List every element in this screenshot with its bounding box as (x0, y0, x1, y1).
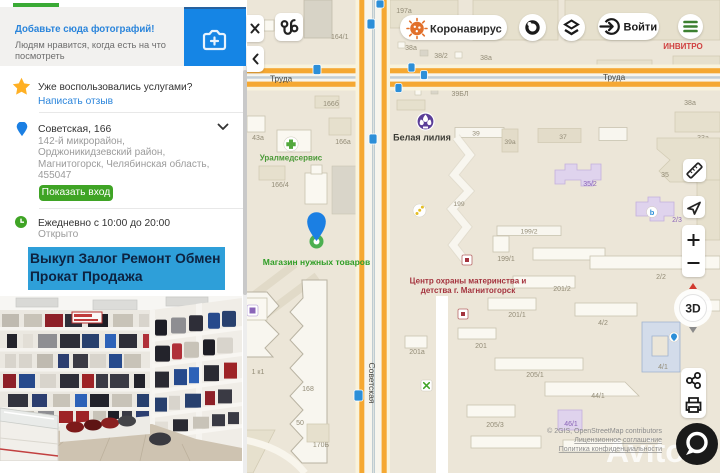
svg-text:2/2: 2/2 (656, 274, 666, 281)
svg-text:35: 35 (661, 172, 669, 179)
svg-text:39БЛ: 39БЛ (452, 91, 469, 98)
svg-text:35/2: 35/2 (583, 181, 597, 188)
svg-text:201а: 201а (409, 349, 425, 356)
svg-text:3D: 3D (685, 302, 701, 316)
svg-text:Магазин нужных товаров: Магазин нужных товаров (263, 257, 370, 267)
svg-text:ИНВИТРО: ИНВИТРО (663, 42, 702, 51)
svg-text:4/2: 4/2 (598, 320, 608, 327)
svg-text:197а: 197а (396, 8, 412, 15)
svg-text:детства г. Магнитогорск: детства г. Магнитогорск (421, 286, 517, 295)
svg-text:199/1: 199/1 (497, 256, 515, 263)
svg-text:4/1: 4/1 (658, 364, 668, 371)
svg-text:Белая лилия: Белая лилия (393, 133, 451, 143)
svg-text:39: 39 (472, 131, 480, 138)
svg-text:46/1: 46/1 (564, 421, 578, 428)
svg-text:Советская: Советская (367, 362, 377, 403)
svg-text:205/1: 205/1 (526, 372, 544, 379)
svg-text:166а: 166а (335, 139, 351, 146)
svg-text:205/3: 205/3 (486, 422, 504, 429)
svg-text:38а: 38а (405, 45, 417, 52)
svg-text:38а: 38а (480, 55, 492, 62)
svg-text:Войти: Войти (624, 22, 658, 34)
svg-text:199/2: 199/2 (520, 229, 537, 236)
svg-text:39а: 39а (504, 139, 516, 146)
svg-text:Коронавирус: Коронавирус (430, 24, 502, 36)
svg-text:168: 168 (302, 386, 314, 393)
svg-text:201: 201 (475, 343, 487, 350)
svg-text:Политика конфиденциальности: Политика конфиденциальности (559, 446, 662, 453)
svg-text:44/1: 44/1 (591, 393, 605, 400)
svg-text:166/4: 166/4 (271, 182, 289, 189)
svg-text:166б: 166б (323, 100, 339, 108)
svg-text:50: 50 (296, 420, 304, 427)
svg-text:1 к1: 1 к1 (252, 369, 265, 376)
svg-text:© 2GIS, OpenStreetMap contribu: © 2GIS, OpenStreetMap contributors (547, 427, 662, 435)
svg-text:Центр охраны материнства и: Центр охраны материнства и (410, 277, 527, 286)
svg-text:164/1: 164/1 (331, 34, 349, 41)
svg-text:Лицензионное соглашение: Лицензионное соглашение (574, 437, 662, 444)
svg-text:199: 199 (453, 201, 465, 208)
svg-text:2/3: 2/3 (672, 217, 682, 224)
svg-text:37: 37 (559, 134, 567, 141)
svg-text:201/2: 201/2 (553, 286, 571, 293)
svg-text:170Б: 170Б (313, 442, 330, 449)
svg-text:Труда: Труда (270, 75, 293, 84)
svg-text:b: b (650, 208, 655, 217)
svg-text:43а: 43а (252, 135, 264, 142)
svg-text:38а: 38а (684, 100, 696, 107)
svg-text:38/2: 38/2 (434, 53, 448, 60)
svg-text:Труда: Труда (603, 73, 626, 82)
svg-text:Уралмедсервис: Уралмедсервис (260, 154, 323, 163)
svg-text:201/1: 201/1 (508, 312, 526, 319)
